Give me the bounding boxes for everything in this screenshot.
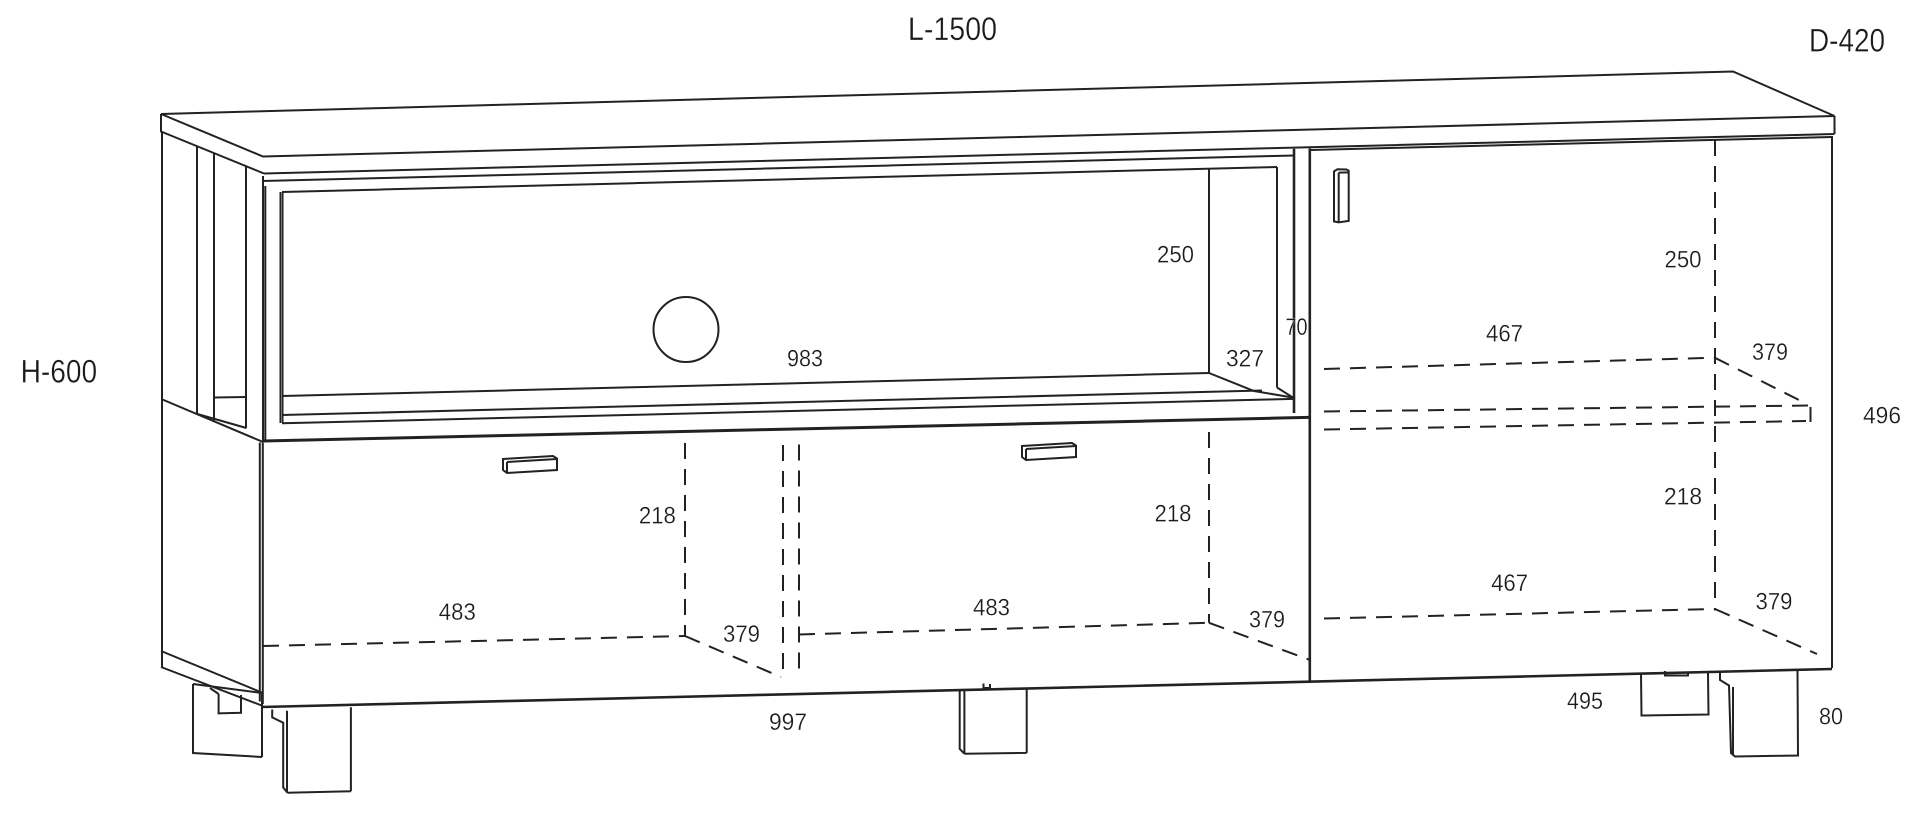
svg-text:379: 379 [723,621,760,648]
svg-text:218: 218 [1155,501,1192,528]
svg-text:80: 80 [1819,704,1843,731]
svg-text:379: 379 [1756,589,1793,616]
svg-text:218: 218 [639,503,676,530]
svg-text:379: 379 [1752,339,1788,366]
svg-text:997: 997 [769,709,807,736]
svg-text:D-420: D-420 [1809,22,1885,58]
svg-text:495: 495 [1567,688,1603,715]
svg-text:327: 327 [1226,346,1264,373]
svg-text:70: 70 [1286,314,1308,341]
svg-text:483: 483 [439,599,476,626]
svg-text:H-600: H-600 [21,354,98,390]
svg-text:496: 496 [1863,403,1901,430]
svg-text:218: 218 [1664,484,1702,511]
svg-text:483: 483 [973,595,1010,622]
svg-text:983: 983 [787,346,823,373]
svg-text:250: 250 [1157,242,1194,269]
svg-text:467: 467 [1491,570,1528,597]
svg-text:379: 379 [1249,607,1285,634]
svg-text:L-1500: L-1500 [908,11,997,47]
svg-text:250: 250 [1665,247,1702,274]
svg-text:467: 467 [1486,321,1523,348]
